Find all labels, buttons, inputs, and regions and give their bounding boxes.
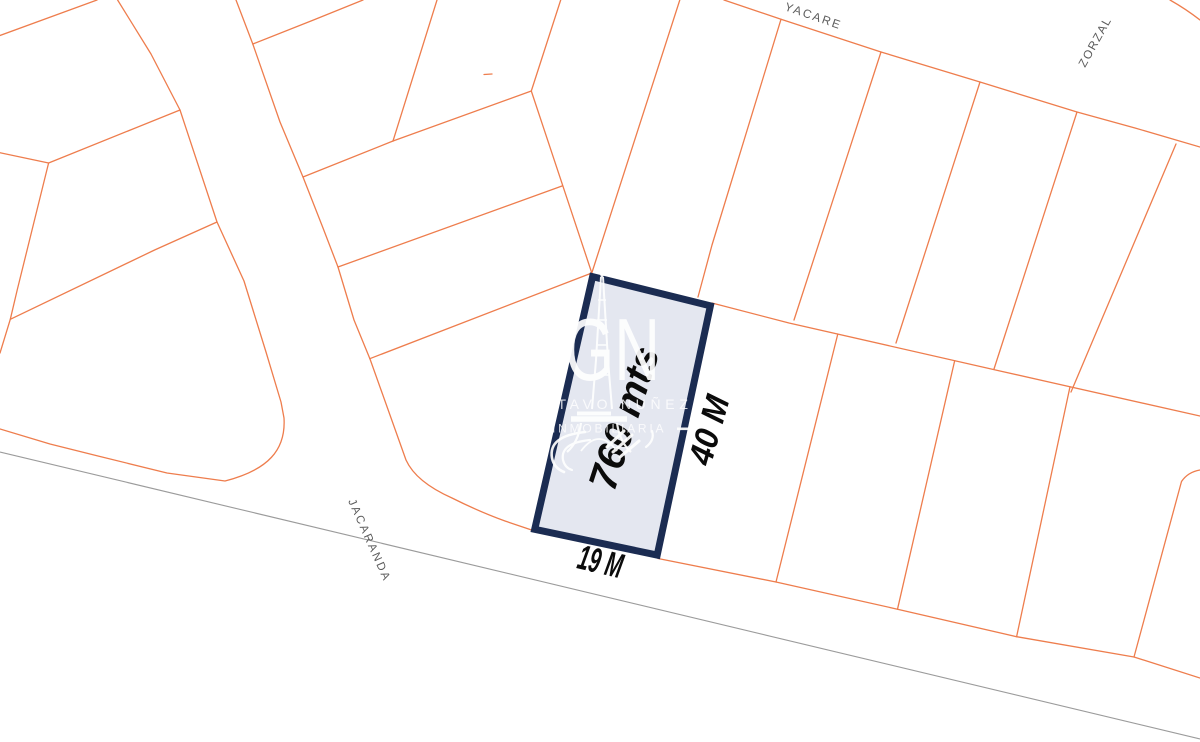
svg-text:INMOBILIARIA: INMOBILIARIA	[552, 422, 666, 436]
svg-text:GUSTAVO NUÑEZ: GUSTAVO NUÑEZ	[513, 396, 693, 412]
svg-text:GN: GN	[565, 300, 660, 399]
